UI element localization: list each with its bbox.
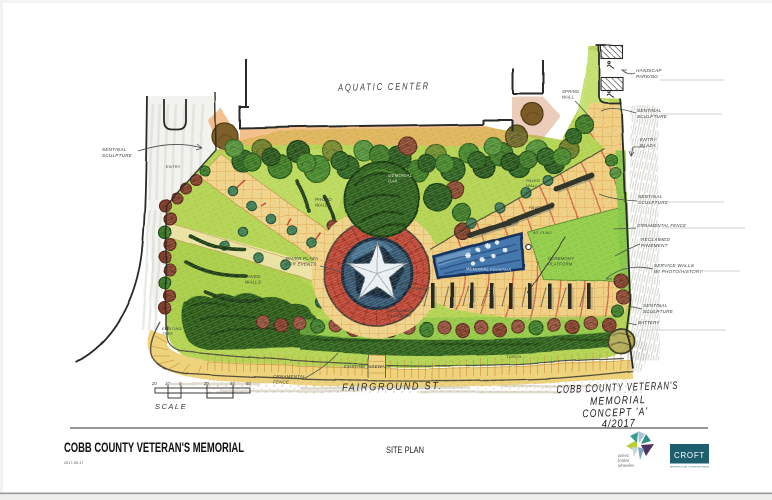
svg-text:SCULPTURE: SCULPTURE — [643, 309, 674, 314]
svg-text:HANDICAP: HANDICAP — [636, 68, 662, 73]
svg-text:MEMORIAL FOUNTAIN: MEMORIAL FOUNTAIN — [466, 268, 511, 272]
svg-text:FENCE: FENCE — [273, 380, 289, 385]
svg-text:SCULPTURE: SCULPTURE — [102, 153, 133, 158]
svg-text:ENTRY: ENTRY — [640, 137, 657, 142]
svg-text:SENTINAL: SENTINAL — [637, 108, 662, 113]
svg-text:20: 20 — [203, 381, 209, 386]
svg-text:EXISTING: EXISTING — [162, 327, 182, 331]
svg-text:WALL: WALL — [526, 183, 538, 188]
svg-text:OAK: OAK — [388, 178, 398, 183]
svg-text:60: 60 — [246, 381, 251, 386]
svg-text:AQUATIC CENTER: AQUATIC CENTER — [337, 81, 430, 94]
svg-text:SENTINAL: SENTINAL — [102, 147, 127, 152]
svg-text:PAVER PLAZA: PAVER PLAZA — [286, 256, 318, 261]
svg-text:TREE: TREE — [162, 332, 173, 336]
svg-text:WALL: WALL — [562, 94, 575, 99]
svg-text:SPRING: SPRING — [562, 89, 580, 94]
svg-text:SITE PLAN: SITE PLAN — [386, 445, 424, 456]
svg-text:COBB COUNTY VETERAN'S MEMORIAL: COBB COUNTY VETERAN'S MEMORIAL — [64, 440, 244, 455]
svg-text:20: 20 — [151, 381, 157, 386]
svg-text:SENTINAL: SENTINAL — [638, 194, 663, 199]
svg-text:CEREMONY: CEREMONY — [548, 256, 575, 261]
svg-text:SCULPTURE: SCULPTURE — [637, 114, 668, 119]
svg-text:FAIRGROUND ST.: FAIRGROUND ST. — [342, 380, 443, 394]
svg-text:WALLS: WALLS — [245, 280, 261, 285]
svg-text:WALL: WALL — [529, 210, 541, 215]
svg-text:PLATFORM: PLATFORM — [548, 261, 573, 266]
svg-text:40: 40 — [230, 381, 235, 386]
svg-text:W/ PHOTO/HISTORY: W/ PHOTO/HISTORY — [654, 269, 703, 274]
svg-text:50' FLAG: 50' FLAG — [533, 230, 552, 235]
svg-text:ORNAMENTAL: ORNAMENTAL — [273, 374, 306, 379]
svg-text:2017-05-17: 2017-05-17 — [64, 461, 83, 465]
svg-text:SCALE: SCALE — [155, 402, 187, 411]
svg-text:PAVED: PAVED — [245, 274, 261, 279]
svg-text:PLANTERS: PLANTERS — [388, 313, 411, 318]
svg-text:ENTRY: ENTRY — [166, 164, 181, 169]
svg-text:CROFT: CROFT — [674, 450, 705, 460]
svg-text:ARCHITECTURE + INTERIOR DESIGN: ARCHITECTURE + INTERIOR DESIGN — [670, 466, 709, 469]
svg-text:TORCH: TORCH — [506, 354, 521, 359]
svg-text:SCULPTURE: SCULPTURE — [399, 286, 426, 291]
svg-text:PARKING: PARKING — [636, 74, 658, 79]
svg-text:BATTERY: BATTERY — [638, 320, 660, 325]
svg-text:wheeler: wheeler — [618, 463, 635, 468]
svg-text:10: 10 — [165, 381, 170, 386]
svg-text:ORNAMENTAL FENCE: ORNAMENTAL FENCE — [637, 223, 686, 228]
svg-text:RECLAIMED: RECLAIMED — [641, 237, 670, 242]
svg-text:SENTINAL: SENTINAL — [643, 303, 668, 308]
svg-text:PAVEMENT: PAVEMENT — [641, 243, 669, 248]
svg-text:SERVICE WALLS: SERVICE WALLS — [654, 263, 695, 268]
svg-text:MEMORIAL: MEMORIAL — [388, 173, 413, 178]
svg-text:EXISTING SIDEWALK: EXISTING SIDEWALK — [344, 364, 391, 369]
svg-text:PHOTO: PHOTO — [315, 197, 332, 202]
svg-text:WALL: WALL — [315, 203, 328, 208]
svg-text:FOR EVENTS: FOR EVENTS — [286, 262, 317, 267]
